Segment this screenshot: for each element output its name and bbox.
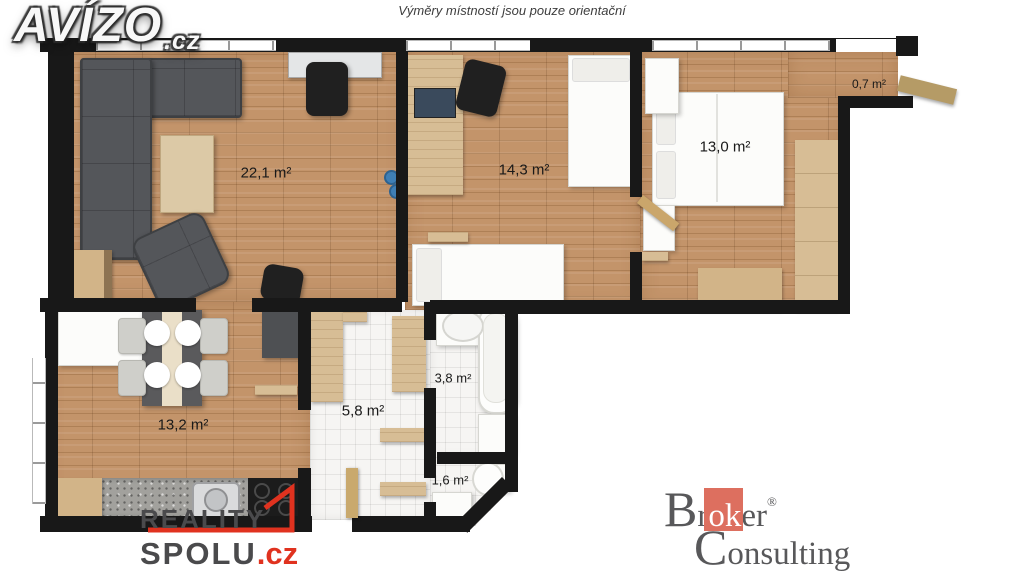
registered-mark: ® [767,494,777,509]
dining-chair-2 [118,360,146,396]
hall-cabinet-left [311,312,343,402]
hall-shelf-mid [380,428,426,442]
coffee-table [160,135,214,213]
wall [845,96,913,108]
entry-door-leaf [346,468,358,518]
plate-3 [175,320,201,346]
hall-wardrobe [392,316,426,392]
avizo-logo-text: AVÍZO [14,0,162,52]
wall [48,52,74,304]
wall [45,302,58,518]
dining-chair-4 [200,360,228,396]
room-label-wc: 1,6 m² [432,473,469,488]
wall [424,302,436,340]
dining-chair-1 [118,318,146,354]
pillow-double-2 [656,151,676,199]
wall-shelf [428,232,468,242]
room-label-bedroom-1: 14,3 m² [499,162,550,179]
office-chair-living [306,62,348,116]
broker-consulting-line1: Broker® [664,484,850,534]
pillow-bed-right [572,58,630,82]
wall [252,298,402,312]
shelf-bedroom-2 [642,252,668,261]
hall-shelf-low [380,482,426,496]
broker-ok-text: ok [708,498,741,534]
closet-top-left [645,58,679,114]
plate-4 [175,362,201,388]
desk-bedroom-1 [405,55,463,195]
wall [298,302,311,410]
reality-spolu-logo-word1: REALITY [140,504,265,535]
entry-nook-floor [788,52,898,98]
shelf-dining [255,385,297,395]
reality-spolu-logo-tld: .cz [257,536,298,571]
bathroom-sink [442,310,484,342]
avizo-logo: AVÍZO.cz [14,2,200,50]
wardrobe [795,140,838,310]
wall [424,388,436,478]
reality-spolu-logo-word2: SPOLU.cz [140,536,298,572]
kitchen-corner-cabinet [58,478,102,518]
wall [838,96,850,312]
room-label-entry: 0,7 m² [852,77,886,91]
wall [505,302,518,462]
room-label-kitchen: 13,2 m² [158,417,209,434]
wall [630,52,642,197]
wall [896,36,918,56]
laptop [414,88,456,118]
wall [396,52,408,302]
reality-spolu-word2-text: SPOLU [140,536,257,571]
window-dining [32,358,46,504]
plate-2 [144,362,170,388]
room-label-living: 22,1 m² [241,165,292,182]
broker-consulting-logo: Broker® Consulting [664,484,850,572]
wall [430,300,850,314]
wall [40,298,196,312]
broker-b: B [664,481,697,537]
broker-er: er [741,498,767,534]
avizo-logo-tld: .cz [164,27,200,55]
pillow-bed-bottom [416,248,442,302]
wall [437,452,512,464]
dining-chair-3 [200,318,228,354]
plate-1 [144,320,170,346]
room-label-bedroom-2: 13,0 m² [700,139,751,156]
wall [352,516,470,532]
corner-sofa-vertical [80,58,152,260]
entry-door-opening [836,39,896,52]
floor-plan-image: Výměry místností jsou pouze orientační [0,0,1024,584]
fridge [262,310,300,358]
consulting-rest: onsulting [727,536,850,572]
window-bedroom-1 [406,40,530,51]
room-label-bathroom: 3,8 m² [435,371,472,386]
broker-ok-mark: ok [708,500,741,533]
window-bedroom-2 [652,40,830,51]
room-label-hallway: 5,8 m² [342,403,385,420]
